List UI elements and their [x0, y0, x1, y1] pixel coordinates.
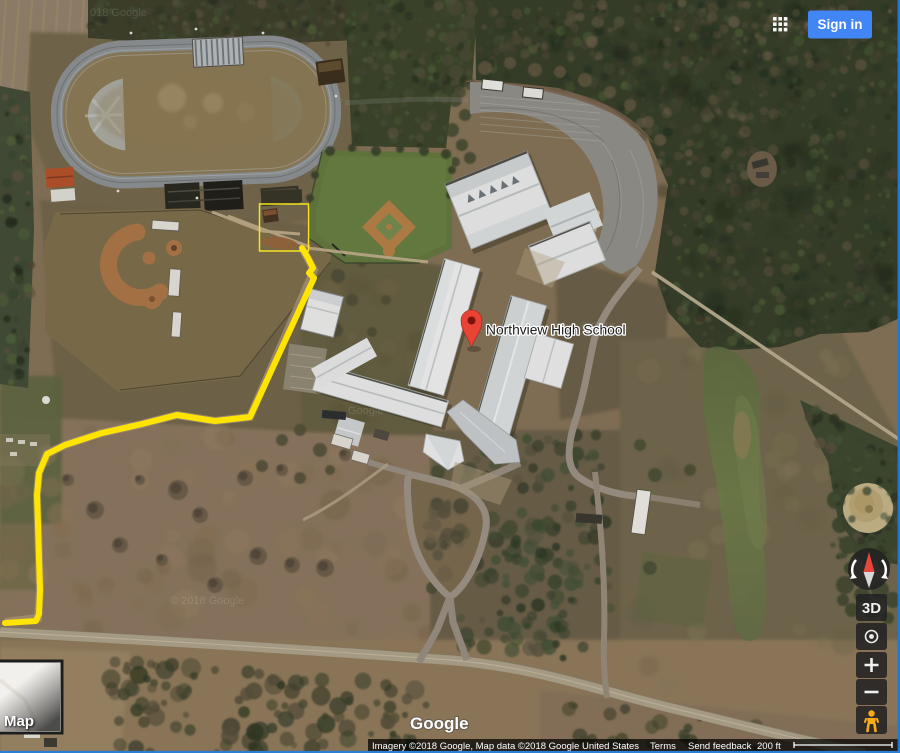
svg-text:Terms: Terms [650, 741, 676, 752]
svg-text:United States: United States [582, 741, 639, 752]
svg-text:3D: 3D [862, 600, 881, 617]
svg-text:Map: Map [4, 713, 34, 730]
svg-text:200 ft: 200 ft [757, 741, 781, 752]
svg-text:Sign in: Sign in [818, 17, 863, 32]
svg-text:Send feedback: Send feedback [688, 741, 752, 752]
svg-text:Google: Google [410, 714, 469, 733]
svg-text:Northview High School: Northview High School [486, 323, 626, 338]
svg-text:Imagery ©2018 Google, Map data: Imagery ©2018 Google, Map data ©2018 Goo… [372, 741, 579, 752]
